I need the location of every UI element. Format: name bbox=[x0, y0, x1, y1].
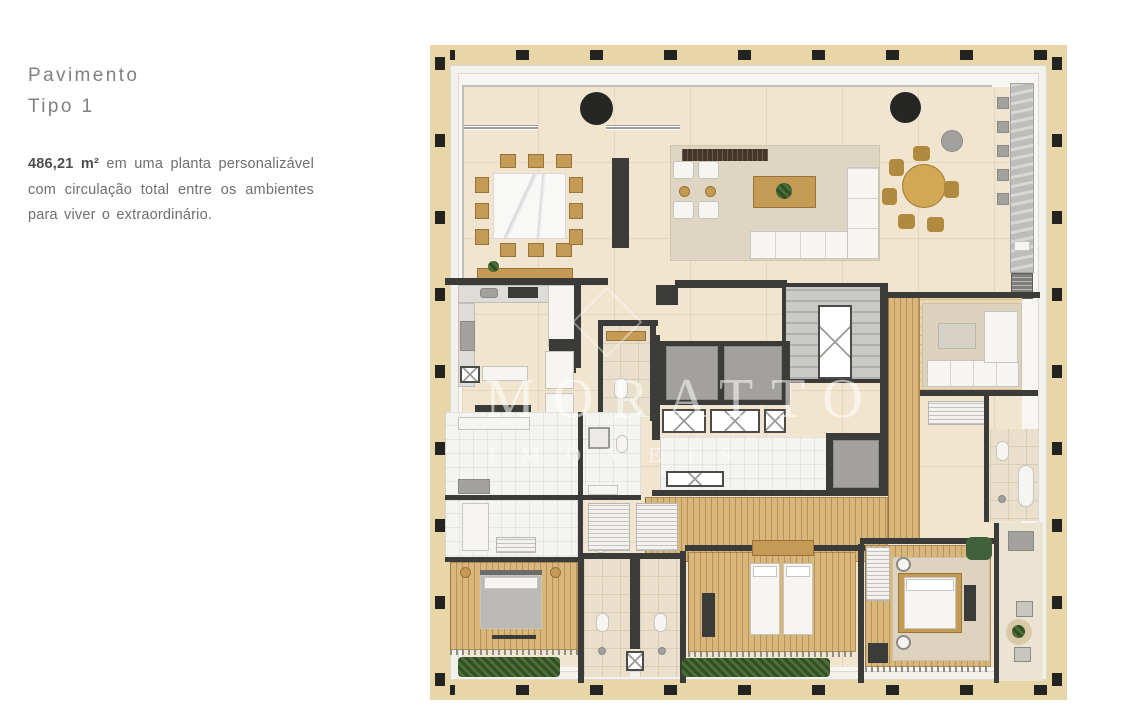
laundry-counter bbox=[458, 417, 530, 430]
bed-pillows bbox=[753, 566, 777, 577]
kitchen-island bbox=[545, 351, 574, 389]
dining-chair bbox=[528, 154, 544, 168]
dining-chair bbox=[569, 203, 583, 219]
bathtub bbox=[1018, 465, 1034, 507]
service-elevator-car bbox=[833, 440, 879, 488]
armchair bbox=[673, 201, 694, 219]
wall bbox=[675, 280, 787, 288]
kitchen-appliance bbox=[460, 321, 475, 351]
wall bbox=[920, 390, 1038, 396]
title-line-1: Pavimento bbox=[28, 60, 139, 91]
bed-pillows bbox=[786, 566, 810, 577]
shower-drain bbox=[998, 495, 1006, 503]
terrace-table bbox=[1008, 531, 1034, 551]
dining-chair bbox=[500, 243, 516, 257]
shaft bbox=[868, 643, 888, 663]
wall bbox=[652, 335, 660, 440]
page-title: Pavimento Tipo 1 bbox=[28, 60, 139, 122]
service-door bbox=[460, 366, 480, 383]
sliding-door-track-1 bbox=[464, 125, 538, 130]
coffee-table-plant bbox=[776, 183, 792, 199]
green-armchair bbox=[966, 537, 992, 560]
dining-chair bbox=[475, 177, 489, 193]
toilet bbox=[654, 613, 667, 632]
core-corner-block bbox=[656, 285, 678, 305]
fireplace-panel bbox=[612, 158, 629, 248]
description-paragraph: 486,21 m² em uma planta personalizável c… bbox=[28, 152, 314, 229]
title-line-2: Tipo 1 bbox=[28, 91, 139, 122]
terrace-chair bbox=[1014, 647, 1031, 662]
side-table bbox=[679, 186, 690, 197]
planter bbox=[458, 657, 560, 677]
dining-chair bbox=[556, 154, 572, 168]
service-bed bbox=[462, 503, 489, 551]
pouf bbox=[896, 635, 911, 650]
service-bath-shower bbox=[588, 427, 610, 449]
closet bbox=[636, 503, 678, 551]
glass-rail-top bbox=[462, 85, 992, 87]
den-sofa-return bbox=[984, 311, 1018, 363]
wall bbox=[880, 283, 888, 495]
round-table-chair bbox=[882, 188, 897, 205]
frame-right bbox=[1047, 45, 1067, 700]
dining-chair bbox=[569, 229, 583, 245]
dining-chair bbox=[569, 177, 583, 193]
kitchen-cabinet-column bbox=[548, 285, 576, 347]
elevator-door bbox=[710, 409, 760, 433]
wall bbox=[445, 278, 608, 285]
stair-shaft bbox=[818, 305, 852, 379]
wall bbox=[578, 412, 583, 562]
bar-sink bbox=[1014, 241, 1030, 251]
tv-panel bbox=[702, 593, 715, 637]
floor-lamp bbox=[941, 130, 963, 152]
bar-stool bbox=[997, 169, 1009, 181]
wall bbox=[984, 396, 989, 522]
elevator-car bbox=[666, 346, 718, 400]
sliding-door-track-2 bbox=[606, 125, 680, 130]
bench-plant bbox=[488, 261, 499, 272]
kitchen-cabinet-row bbox=[482, 366, 528, 381]
shaft-door bbox=[626, 651, 644, 671]
frame-left bbox=[430, 45, 450, 700]
armchair bbox=[698, 161, 719, 179]
terrace-plant bbox=[1012, 625, 1025, 638]
cooktop bbox=[508, 287, 538, 298]
terrace-chair bbox=[1016, 601, 1033, 617]
bar-stool bbox=[997, 193, 1009, 205]
toilet bbox=[614, 378, 628, 399]
bar-stool bbox=[997, 121, 1009, 133]
dining-chair bbox=[556, 243, 572, 257]
round-feature-1 bbox=[580, 92, 613, 125]
sideboard bbox=[682, 149, 768, 161]
service-vanity bbox=[588, 485, 618, 495]
dining-table bbox=[493, 173, 566, 239]
den-closet bbox=[928, 401, 988, 425]
planter bbox=[682, 658, 830, 677]
sofa-chaise bbox=[847, 167, 879, 259]
round-dining-table bbox=[902, 164, 946, 208]
frame-bottom bbox=[430, 680, 1067, 700]
lobby-door bbox=[666, 471, 724, 487]
pouf bbox=[550, 567, 561, 578]
toilet bbox=[996, 441, 1009, 461]
page: Pavimento Tipo 1 486,21 m² em uma planta… bbox=[0, 0, 1133, 724]
round-table-chair bbox=[913, 146, 930, 161]
pouf bbox=[896, 557, 911, 572]
shower-drain bbox=[658, 647, 666, 655]
toilet bbox=[616, 435, 628, 453]
bed-pillows bbox=[484, 577, 538, 589]
wall bbox=[475, 405, 531, 412]
bed-bench bbox=[492, 635, 536, 639]
bed-pillows bbox=[906, 579, 954, 591]
elevator-door bbox=[662, 409, 706, 433]
area-value: 486,21 m² bbox=[28, 156, 99, 172]
elevator-car bbox=[724, 346, 782, 400]
floor-plan: MORATTO IMÓVEIS bbox=[430, 45, 1067, 700]
round-table-chair bbox=[889, 159, 904, 176]
toilet bbox=[596, 613, 609, 632]
dining-chair bbox=[528, 243, 544, 257]
round-feature-2 bbox=[890, 92, 921, 123]
bedroom2-desk bbox=[752, 540, 814, 556]
kitchen-sink bbox=[480, 288, 498, 298]
bar-stool bbox=[997, 145, 1009, 157]
glass-rail-left bbox=[462, 87, 464, 287]
den-sofa bbox=[927, 360, 1019, 387]
bed-bench bbox=[964, 585, 976, 621]
dining-chair bbox=[475, 229, 489, 245]
deck-corridor-vertical bbox=[888, 295, 920, 540]
sofa-horizontal bbox=[750, 231, 852, 259]
frame-top bbox=[430, 45, 1067, 65]
washer bbox=[458, 479, 490, 494]
deck-edge bbox=[865, 667, 991, 672]
dining-chair bbox=[475, 203, 489, 219]
closet bbox=[588, 503, 630, 551]
round-table-chair bbox=[944, 181, 959, 198]
pouf bbox=[460, 567, 471, 578]
service-wardrobe bbox=[496, 537, 536, 553]
round-table-chair bbox=[898, 214, 915, 229]
armchair bbox=[673, 161, 694, 179]
side-table bbox=[705, 186, 716, 197]
wall bbox=[652, 490, 888, 496]
den-table bbox=[938, 323, 976, 349]
deck-edge bbox=[450, 650, 578, 655]
armchair bbox=[698, 201, 719, 219]
shower-drain bbox=[598, 647, 606, 655]
elevator-door bbox=[764, 409, 786, 433]
dining-chair bbox=[500, 154, 516, 168]
deck-edge bbox=[688, 652, 856, 657]
wall bbox=[858, 544, 864, 683]
bar-stool bbox=[997, 97, 1009, 109]
shaft bbox=[630, 559, 640, 649]
master-closet bbox=[866, 547, 890, 601]
round-table-chair bbox=[927, 217, 944, 232]
